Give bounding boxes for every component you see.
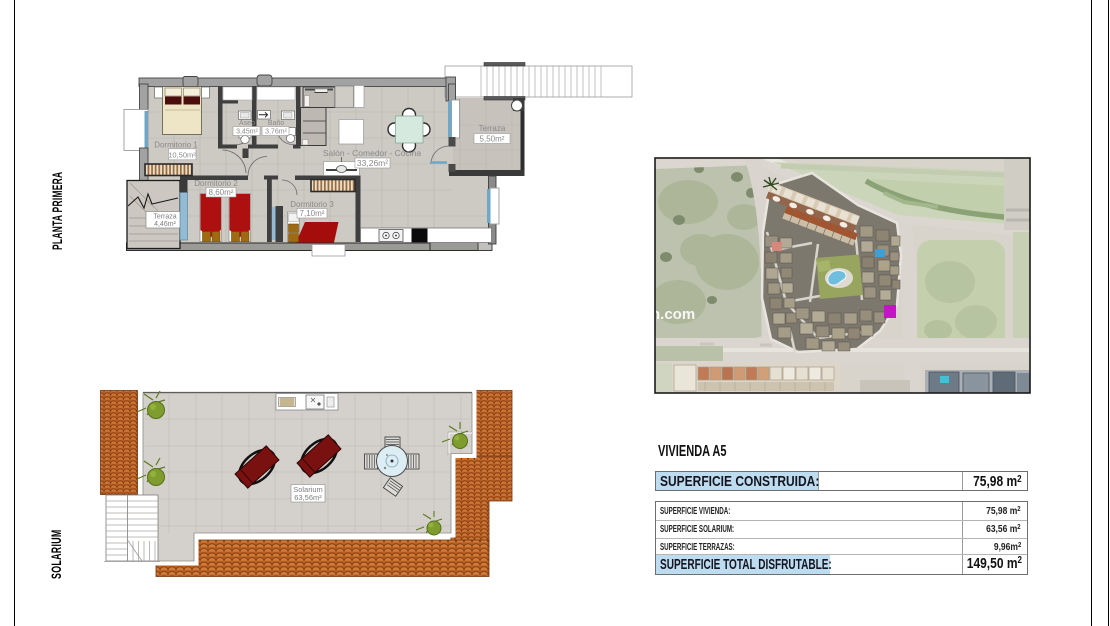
svg-text:10,50m²: 10,50m² bbox=[168, 151, 196, 160]
svg-text:33,26m²: 33,26m² bbox=[357, 158, 388, 168]
svg-text:Terraza: Terraza bbox=[479, 124, 506, 133]
svg-text:4,46m²: 4,46m² bbox=[154, 221, 176, 228]
svg-text:8,60m²: 8,60m² bbox=[209, 188, 234, 197]
svg-text:Terraza: Terraza bbox=[153, 214, 176, 221]
svg-text:3,45m²: 3,45m² bbox=[236, 129, 258, 136]
svg-text:7,10m²: 7,10m² bbox=[300, 209, 325, 218]
svg-text:Salón - Comedor - Cocina: Salón - Comedor - Cocina bbox=[323, 148, 422, 158]
svg-text:Dormitorio 1: Dormitorio 1 bbox=[154, 141, 198, 150]
svg-text:3,76m²: 3,76m² bbox=[265, 129, 287, 136]
svg-text:n.com: n.com bbox=[651, 306, 695, 323]
svg-text:Dormitorio 3: Dormitorio 3 bbox=[290, 200, 334, 209]
svg-text:Dormitorio 2: Dormitorio 2 bbox=[194, 179, 238, 188]
svg-text:5,50m²: 5,50m² bbox=[480, 135, 505, 144]
svg-text:Baño: Baño bbox=[268, 120, 284, 127]
svg-text:Aseo: Aseo bbox=[239, 120, 255, 127]
svg-text:63,56m²: 63,56m² bbox=[294, 493, 322, 502]
